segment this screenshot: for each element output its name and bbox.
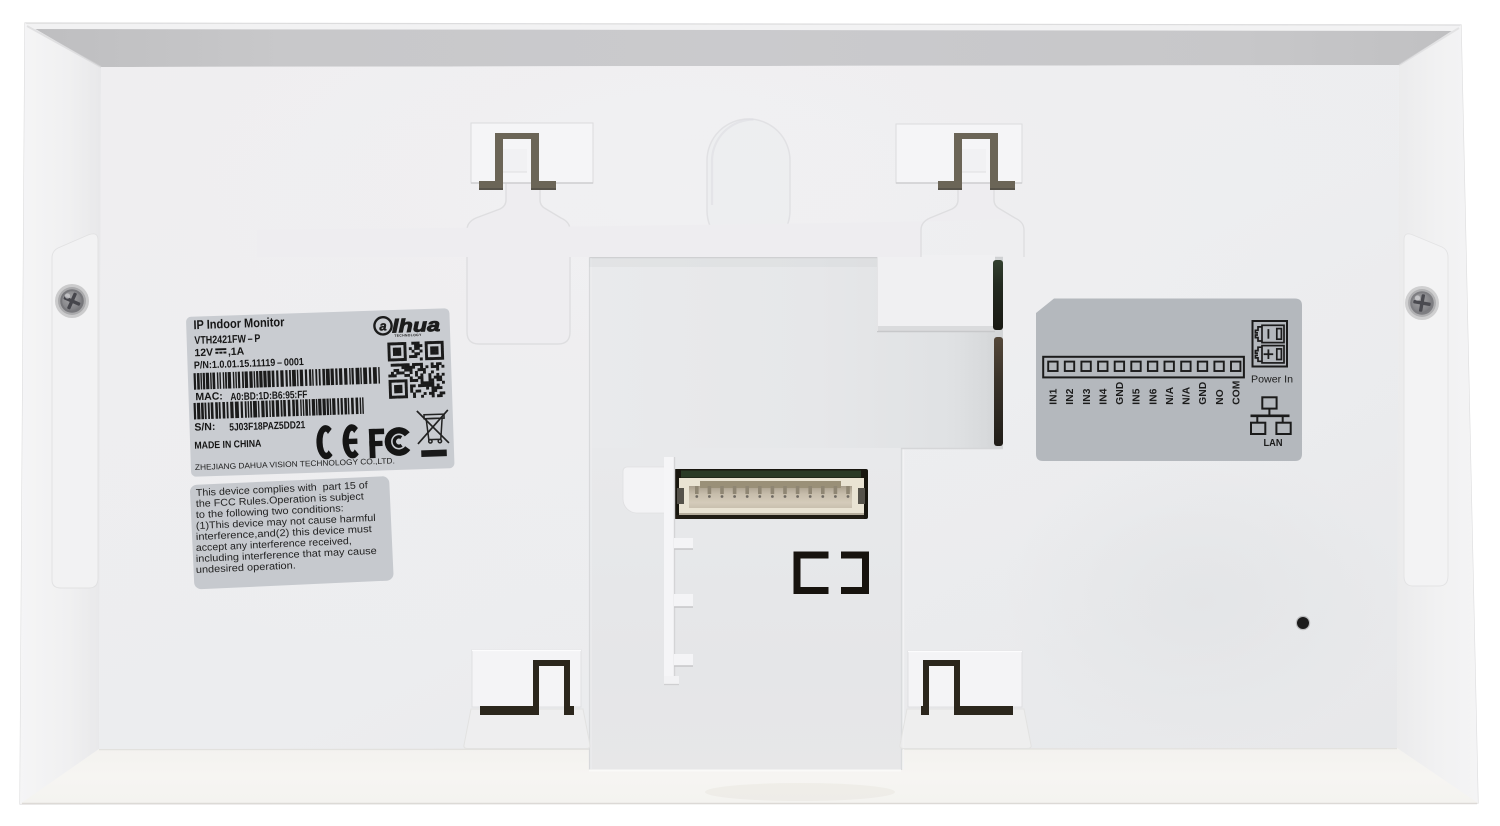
svg-text:N/A: N/A (1165, 386, 1176, 405)
svg-text:LAN: LAN (1264, 437, 1283, 449)
svg-text:S/N:: S/N: (194, 421, 215, 434)
svg-text:MAC:: MAC: (195, 390, 223, 403)
svg-text:5J03F18PAZ5DD21: 5J03F18PAZ5DD21 (229, 419, 305, 434)
svg-text:VTH2421FW – P: VTH2421FW – P (194, 333, 260, 347)
svg-text:12V: 12V (194, 347, 213, 360)
svg-text:Power In: Power In (1251, 375, 1293, 386)
svg-text:GND: GND (1198, 382, 1209, 405)
svg-text:IN6: IN6 (1148, 388, 1159, 405)
svg-text:GND: GND (1115, 382, 1126, 405)
svg-text:,1A: ,1A (228, 346, 245, 359)
svg-text:a: a (379, 318, 387, 333)
svg-text:NO: NO (1215, 389, 1226, 405)
svg-text:IN4: IN4 (1099, 388, 1110, 405)
svg-text:IN3: IN3 (1082, 388, 1093, 405)
svg-text:IN2: IN2 (1065, 388, 1076, 405)
svg-text:IN1: IN1 (1049, 388, 1060, 405)
svg-text:MADE IN CHINA: MADE IN CHINA (194, 439, 261, 452)
svg-text:IN5: IN5 (1132, 388, 1143, 405)
svg-text:COM: COM (1231, 380, 1242, 404)
svg-text:IP Indoor Monitor: IP Indoor Monitor (193, 314, 284, 332)
svg-text:N/A: N/A (1182, 386, 1193, 405)
